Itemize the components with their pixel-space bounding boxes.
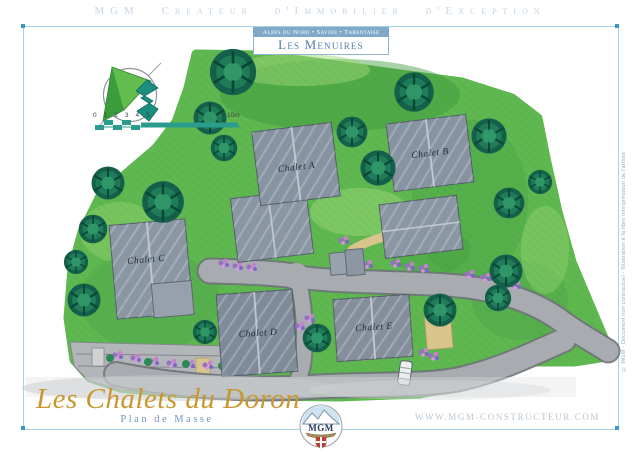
resort-banner: Alpes du Nord • Savoie • Tarentaise Les … — [253, 27, 389, 55]
side-credit: © MGM - Document non contractuel - Illus… — [621, 152, 627, 372]
region-line: Alpes du Nord • Savoie • Tarentaise — [253, 27, 389, 37]
logo-text: MGM — [308, 423, 334, 433]
chalet-d: Chalet D — [216, 289, 298, 376]
frame-corner — [615, 24, 619, 28]
scale-ticks: 0 1 2 3 4 5 — [93, 112, 152, 119]
utility-hut — [329, 248, 365, 277]
chalet-c: Chalet C — [109, 219, 194, 321]
brand-tagline: MGM Createur d'Immobilier d'Exception — [0, 5, 640, 17]
scale-max-label: 10m — [227, 112, 240, 119]
frame-corner — [21, 426, 25, 430]
site-plan-page: MGM Createur d'Immobilier d'Exception Al… — [0, 0, 640, 452]
chalet-e: Chalet E — [333, 294, 413, 361]
frame-corner — [21, 24, 25, 28]
plan-subtitle: Plan de Masse — [36, 414, 298, 425]
frame-corner — [615, 426, 619, 430]
resort-name: Les Menuires — [253, 37, 389, 55]
website-link[interactable]: WWW.MGM-CONSTRUCTEUR.COM — [415, 412, 600, 422]
project-title: Les Chalets du Doron — [36, 383, 300, 416]
mgm-logo: MGM — [296, 403, 346, 451]
logo-shield-cross — [316, 441, 326, 443]
